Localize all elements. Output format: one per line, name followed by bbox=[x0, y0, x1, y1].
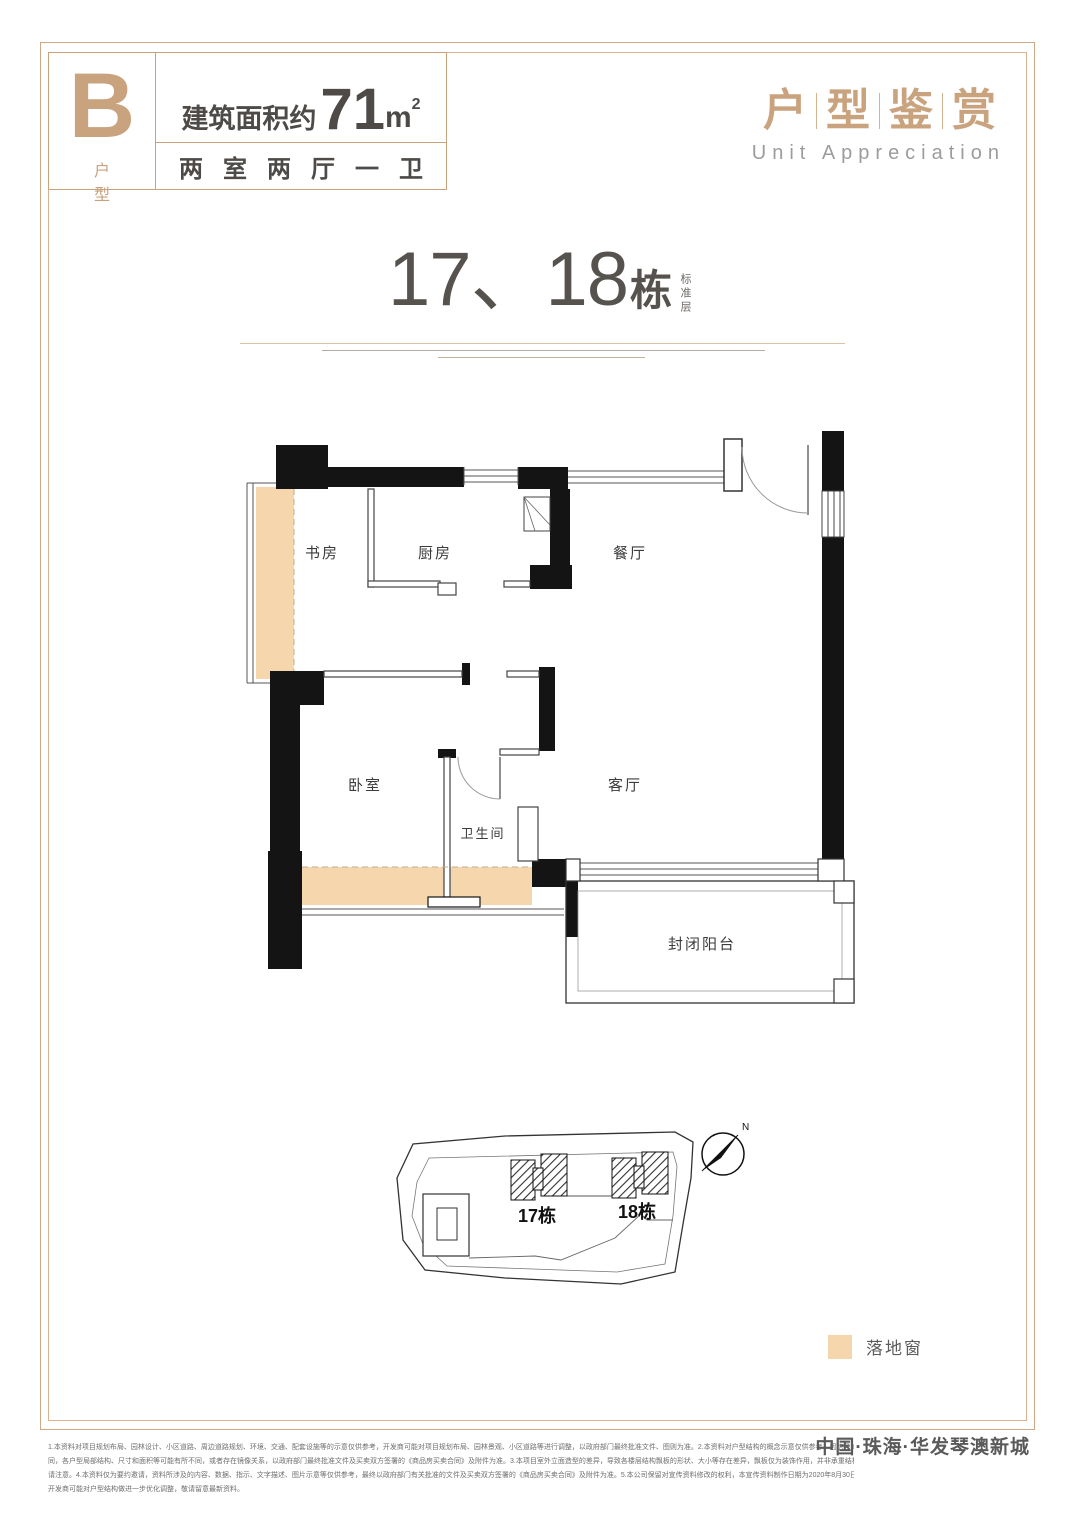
layout-cell: 两室两厅一卫 bbox=[156, 143, 446, 189]
unit-type-label: 户 型 bbox=[49, 157, 155, 205]
unit-info-box: 建筑面积约 71 m2 两室两厅一卫 bbox=[155, 52, 447, 190]
floor-tag: 标准层 bbox=[678, 268, 692, 320]
room-label-balcony: 封闭阳台 bbox=[668, 936, 736, 953]
legend-swatch bbox=[828, 1335, 852, 1359]
brand-char-2: 型 bbox=[817, 86, 879, 136]
room-label-living: 客厅 bbox=[608, 777, 642, 794]
disclaimer-line-2: 同，各户型局部结构、尺寸和面积等可能有所不同，或者存在镜像关系，以政府部门最终批… bbox=[48, 1455, 854, 1469]
brand-title: 户 型 鉴 赏 bbox=[754, 86, 1005, 136]
brand-char-4: 赏 bbox=[943, 86, 1005, 136]
unit-letter: B bbox=[49, 57, 155, 155]
room-label-kitchen: 厨房 bbox=[418, 545, 452, 562]
layout-text: 两室两厅一卫 bbox=[159, 149, 443, 184]
area-cell: 建筑面积约 71 m2 bbox=[156, 53, 446, 143]
divider-line-3 bbox=[438, 357, 645, 358]
site-tower-17 bbox=[511, 1154, 567, 1200]
area-value: 71 bbox=[320, 84, 385, 136]
legend: 落地窗 bbox=[828, 1334, 923, 1359]
site-tower-18 bbox=[612, 1152, 668, 1198]
footer-brand: 中国·珠海·华发琴澳新城 bbox=[815, 1432, 1030, 1459]
brand-subtitle: Unit Appreciation bbox=[752, 142, 1005, 165]
disclaimer-line-4: 开发商可能对户型结构做进一步优化调整，敬请留意最新资料。 bbox=[48, 1483, 854, 1497]
right-wall-window bbox=[822, 491, 844, 537]
brand-char-1: 户 bbox=[754, 86, 816, 136]
divider-line-1 bbox=[240, 343, 845, 344]
room-label-study: 书房 bbox=[305, 545, 339, 562]
compass-icon: N bbox=[702, 1122, 749, 1175]
site-building-left bbox=[423, 1194, 469, 1256]
site-label-17: 17栋 bbox=[518, 1205, 556, 1226]
bathroom-door bbox=[458, 757, 500, 799]
area-unit: m2 bbox=[385, 87, 421, 136]
divider-line-2 bbox=[322, 350, 765, 351]
room-label-bathroom: 卫生间 bbox=[460, 826, 505, 841]
appliance-symbol bbox=[524, 497, 550, 531]
building-numbers: 17、18 bbox=[388, 240, 628, 320]
brand-block: 户 型 鉴 赏 Unit Appreciation bbox=[752, 86, 1005, 165]
disclaimer-line-1: 1.本资料对项目规划布局、园林设计、小区道路、周边道路规划、环境、交通、配套设施… bbox=[48, 1441, 854, 1455]
compass-north-label: N bbox=[742, 1122, 749, 1133]
area-prefix: 建筑面积约 bbox=[181, 102, 316, 136]
unit-type-box: B 户 型 bbox=[48, 52, 156, 190]
disclaimer-line-3: 请注意。4.本资料仅为要约邀请，资料所涉及的内容、数据、指示、文字描述、图片示意… bbox=[48, 1469, 854, 1483]
building-suffix: 栋 bbox=[630, 262, 672, 320]
area-unit-base: m bbox=[385, 101, 412, 134]
disclaimer: 1.本资料对项目规划布局、园林设计、小区道路、周边道路规划、环境、交通、配套设施… bbox=[48, 1441, 854, 1497]
entry-door bbox=[724, 439, 808, 515]
building-title: 17、18 栋 标准层 bbox=[0, 240, 1080, 320]
site-labels: 17栋 18栋 bbox=[518, 1201, 656, 1226]
area-unit-sup: 2 bbox=[412, 96, 421, 113]
site-plan-svg: 17栋 18栋 N bbox=[385, 1108, 775, 1318]
floor-plan: 书房 厨房 餐厅 卧室 卫生间 客厅 封闭阳台 bbox=[230, 415, 890, 1025]
room-label-dining: 餐厅 bbox=[613, 545, 647, 562]
brand-char-3: 鉴 bbox=[880, 86, 942, 136]
room-label-bedroom: 卧室 bbox=[348, 777, 382, 794]
floor-plan-svg: 书房 厨房 餐厅 卧室 卫生间 客厅 封闭阳台 bbox=[230, 415, 890, 1025]
site-plan: 17栋 18栋 N bbox=[385, 1108, 775, 1318]
brochure-page: B 户 型 建筑面积约 71 m2 两室两厅一卫 户 型 鉴 赏 Unit Ap… bbox=[0, 0, 1080, 1526]
legend-label: 落地窗 bbox=[866, 1334, 923, 1359]
balcony-outline bbox=[566, 859, 854, 1003]
site-label-18: 18栋 bbox=[618, 1201, 656, 1222]
